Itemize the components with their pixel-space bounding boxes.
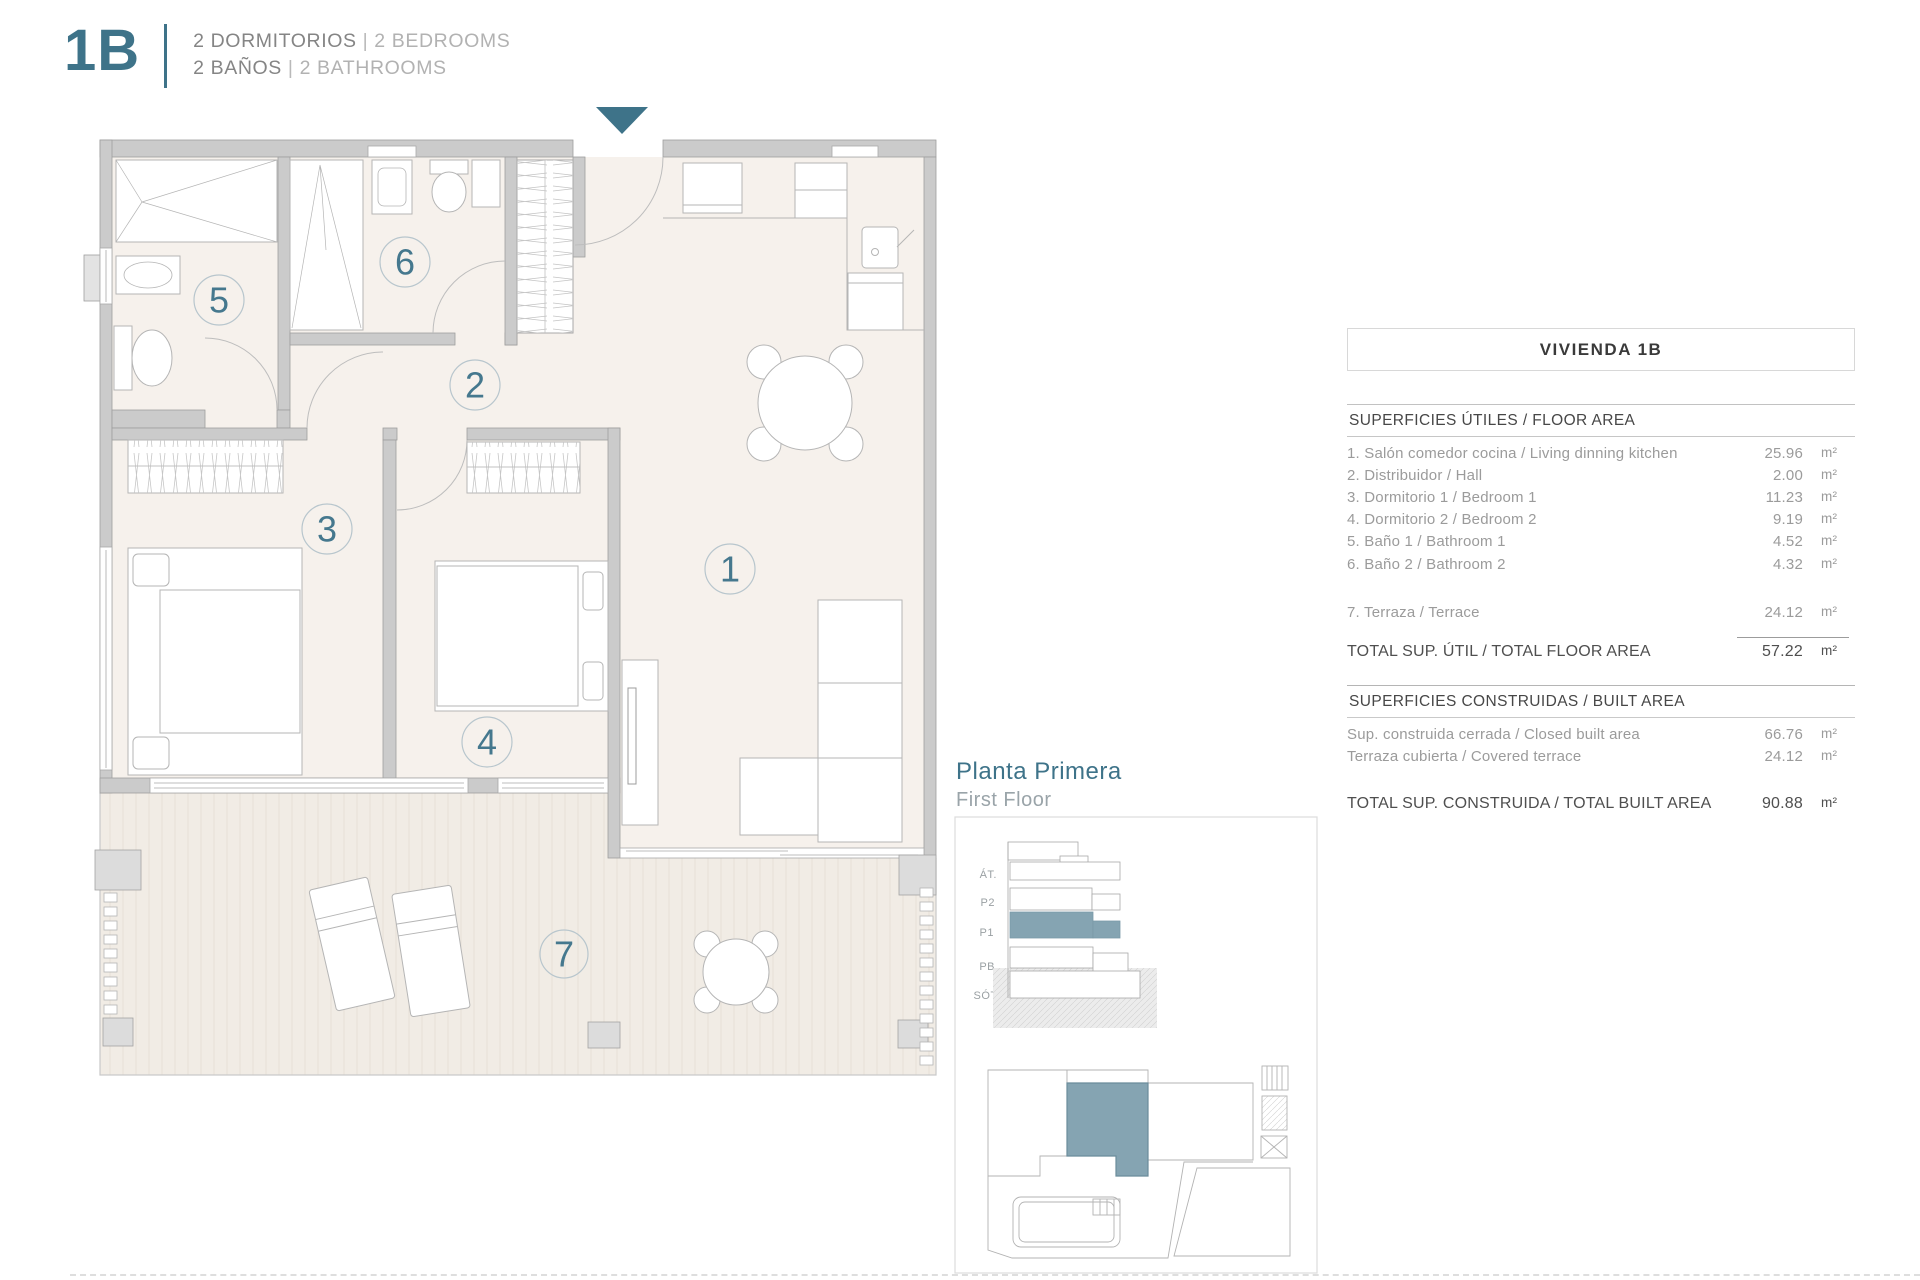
- bath2-shower: [290, 160, 363, 330]
- wall-top-right: [663, 140, 936, 157]
- row-label: 2. Distribuidor / Hall: [1347, 467, 1725, 484]
- row-label: 4. Dormitorio 2 / Bedroom 2: [1347, 511, 1725, 528]
- table-row: 4. Dormitorio 2 / Bedroom 2 9.19 m²: [1347, 509, 1855, 531]
- key-plan-title-es: Planta Primera: [956, 758, 1122, 786]
- section-floor-sotano: [1010, 971, 1140, 998]
- total-built-row: TOTAL SUP. CONSTRUIDA / TOTAL BUILT AREA…: [1347, 795, 1855, 813]
- wall-bath1-bath2: [278, 157, 290, 410]
- section-floor-pb: [1010, 947, 1093, 968]
- pillar: [103, 1018, 133, 1046]
- kitchen-sink: [862, 227, 898, 268]
- kitchen-dishwasher: [848, 273, 903, 330]
- built-area-header: SUPERFICIES CONSTRUIDAS / BUILT AREA: [1347, 686, 1855, 718]
- key-plan-title: Planta Primera First Floor: [956, 758, 1122, 812]
- table-row: 2. Distribuidor / Hall 2.00 m²: [1347, 464, 1855, 486]
- section-floor-p2: [1010, 888, 1092, 910]
- bed-pillow: [583, 662, 603, 700]
- row-label: Terraza cubierta / Covered terrace: [1347, 748, 1725, 765]
- wall-bath2-entry: [505, 157, 517, 345]
- dining-table: [747, 345, 863, 461]
- plan-sheet-page: 1B 2 DORMITORIOS|2 BEDROOMS 2 BAÑOS|2 BA…: [0, 0, 1920, 1280]
- svg-text:6: 6: [395, 242, 415, 283]
- row-value: 24.12: [1725, 604, 1803, 621]
- svg-text:2: 2: [465, 365, 485, 406]
- row-unit: m²: [1803, 748, 1855, 765]
- terrace-table-set: [694, 931, 778, 1013]
- wall-living-bedroom: [608, 428, 620, 858]
- tv-screen: [628, 688, 636, 784]
- section-floor-atico: [1010, 862, 1120, 880]
- row-value: 2.00: [1725, 467, 1803, 484]
- bath1-toilet: [132, 330, 172, 386]
- tv-cabinet: [622, 660, 658, 825]
- pillar: [95, 850, 141, 890]
- row-label: 7. Terraza / Terrace: [1347, 604, 1725, 621]
- table-row: 5. Baño 1 / Bathroom 1 4.52 m²: [1347, 531, 1855, 553]
- floor-area-header: SUPERFICIES ÚTILES / FLOOR AREA: [1347, 404, 1855, 437]
- svg-text:3: 3: [317, 509, 337, 550]
- wall-right: [924, 157, 936, 858]
- bath1-toilet-tank: [114, 326, 132, 390]
- sofa-chaise: [740, 758, 818, 835]
- terrace-table-top: [703, 939, 769, 1005]
- svg-text:5: 5: [209, 280, 229, 321]
- area-table-title: VIVIENDA 1B: [1347, 328, 1855, 371]
- bath1-shower: [116, 160, 277, 242]
- row-unit: m²: [1803, 489, 1855, 506]
- bed-pillow: [133, 554, 169, 586]
- page-edge-line: [70, 1274, 1920, 1276]
- total-rule: [1737, 637, 1849, 638]
- pillar: [588, 1022, 620, 1048]
- sofa-main: [818, 600, 902, 842]
- row-label: 6. Baño 2 / Bathroom 2: [1347, 556, 1725, 573]
- row-unit: m²: [1803, 604, 1855, 621]
- built-area-rows: Sup. construida cerrada / Closed built a…: [1347, 723, 1855, 767]
- window-bedroom2: [498, 778, 608, 793]
- row-label: 3. Dormitorio 1 / Bedroom 1: [1347, 489, 1725, 506]
- sliding-door-terrace: [620, 848, 924, 858]
- bed-pillow: [583, 572, 603, 610]
- key-block-right: [1148, 1083, 1253, 1160]
- section-floor-p1-highlight: [1010, 912, 1093, 938]
- key-pool: [1013, 1197, 1120, 1247]
- entry-closet: [517, 160, 573, 333]
- wall-stub-exterior: [84, 255, 100, 301]
- wall-bath2-hall: [290, 333, 455, 345]
- total-floor-row: TOTAL SUP. ÚTIL / TOTAL FLOOR AREA 57.22…: [1347, 643, 1855, 661]
- total-unit: m²: [1803, 643, 1855, 661]
- wall-hall-bedrooms-b: [383, 428, 397, 440]
- wall-top-left: [100, 140, 573, 157]
- row-unit: m²: [1803, 511, 1855, 528]
- table-row: 6. Baño 2 / Bathroom 2 4.32 m²: [1347, 553, 1855, 575]
- row-value: 4.52: [1725, 533, 1803, 550]
- wall-bath1-south-b: [277, 410, 290, 428]
- key-plans: ÁT. P2 P1 PB SÓT.: [955, 817, 1317, 1273]
- row-unit: m²: [1803, 467, 1855, 484]
- bath2-toilet: [432, 172, 466, 212]
- bath2-cabinet: [472, 160, 500, 207]
- window-bath1-side: [100, 248, 112, 304]
- area-table: VIVIENDA 1B SUPERFICIES ÚTILES / FLOOR A…: [1347, 328, 1855, 813]
- table-row: 1. Salón comedor cocina / Living dinning…: [1347, 442, 1855, 464]
- svg-text:P2: P2: [981, 897, 995, 909]
- entrance-arrow-icon: [596, 107, 648, 134]
- row-value: 4.32: [1725, 556, 1803, 573]
- total-unit: m²: [1803, 795, 1855, 813]
- window-bedroom1: [150, 778, 468, 793]
- svg-text:PB: PB: [979, 961, 995, 973]
- table-row: 3. Dormitorio 1 / Bedroom 1 11.23 m²: [1347, 486, 1855, 508]
- total-value: 57.22: [1725, 643, 1803, 661]
- table-row: Sup. construida cerrada / Closed built a…: [1347, 723, 1855, 745]
- row-unit: m²: [1803, 445, 1855, 462]
- window-bedroom1-side: [100, 547, 112, 770]
- total-label: TOTAL SUP. CONSTRUIDA / TOTAL BUILT AREA: [1347, 795, 1725, 813]
- key-stairs: [1262, 1066, 1288, 1090]
- row-value: 66.76: [1725, 726, 1803, 743]
- wall-vent-bath2: [368, 146, 416, 157]
- svg-text:1: 1: [720, 549, 740, 590]
- bed-duvet: [437, 566, 578, 706]
- table-row: Terraza cubierta / Covered terrace 24.12…: [1347, 746, 1855, 768]
- table-row-terrace: 7. Terraza / Terrace 24.12 m²: [1347, 601, 1855, 623]
- row-label: Sup. construida cerrada / Closed built a…: [1347, 726, 1725, 743]
- row-label: 5. Baño 1 / Bathroom 1: [1347, 533, 1725, 550]
- row-value: 24.12: [1725, 748, 1803, 765]
- bedroom-1-furniture: [128, 440, 302, 775]
- wall-vent-kitchen: [832, 146, 878, 157]
- total-value: 90.88: [1725, 795, 1803, 813]
- row-label: 1. Salón comedor cocina / Living dinning…: [1347, 445, 1725, 462]
- row-unit: m²: [1803, 533, 1855, 550]
- svg-text:4: 4: [477, 722, 497, 763]
- key-plan-title-en: First Floor: [956, 789, 1122, 812]
- total-label: TOTAL SUP. ÚTIL / TOTAL FLOOR AREA: [1347, 643, 1725, 661]
- wall-bath1-south-a: [112, 410, 205, 428]
- wall-hall-bedrooms-c: [467, 428, 620, 440]
- row-unit: m²: [1803, 726, 1855, 743]
- wall-bedroom-divider: [383, 440, 396, 778]
- row-value: 9.19: [1725, 511, 1803, 528]
- wall-entry-jamb: [573, 157, 585, 257]
- bed-duvet: [160, 590, 300, 733]
- svg-text:7: 7: [554, 934, 574, 975]
- row-value: 11.23: [1725, 489, 1803, 506]
- floor-area-rows: 1. Salón comedor cocina / Living dinning…: [1347, 442, 1855, 623]
- svg-text:P1: P1: [980, 927, 994, 939]
- row-unit: m²: [1803, 556, 1855, 573]
- key-shaft: [1262, 1096, 1287, 1130]
- row-value: 25.96: [1725, 445, 1803, 462]
- svg-text:ÁT.: ÁT.: [980, 868, 997, 881]
- bed-pillow: [133, 737, 169, 769]
- wall-hall-bedrooms-a: [112, 428, 307, 440]
- dining-table-top: [758, 356, 852, 450]
